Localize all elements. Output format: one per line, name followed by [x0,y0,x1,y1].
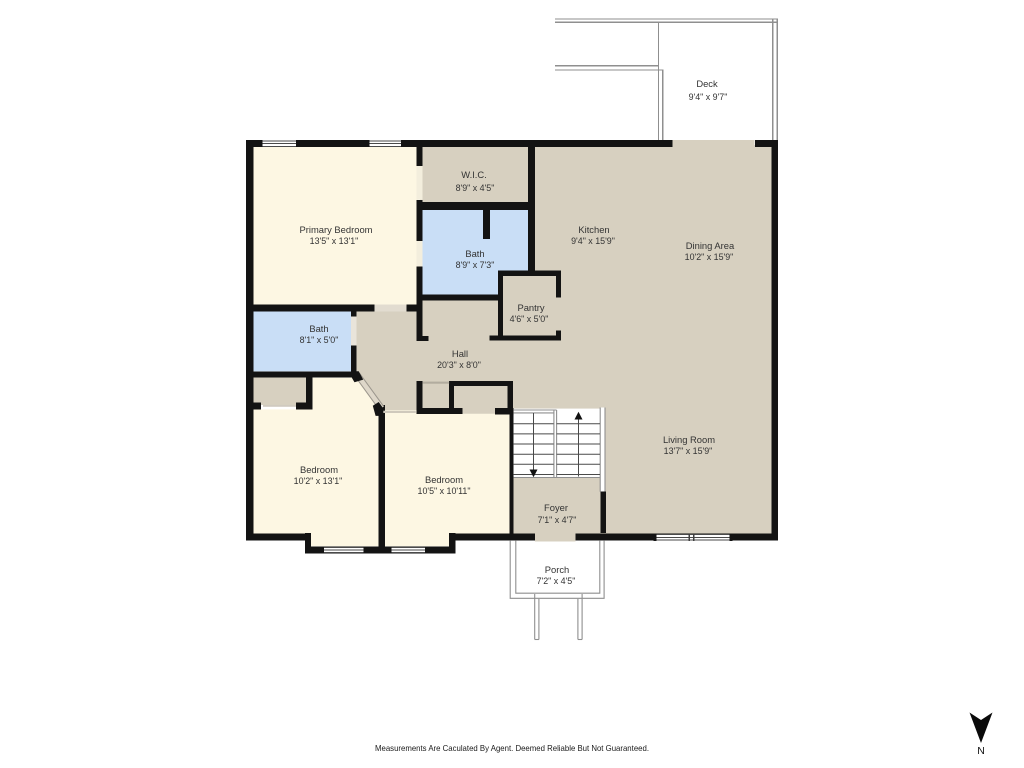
svg-text:20'3" x 8'0": 20'3" x 8'0" [437,360,481,370]
svg-text:Living Room: Living Room [663,434,715,445]
svg-text:9'4" x 15'9": 9'4" x 15'9" [571,236,615,246]
svg-text:7'2" x 4'5": 7'2" x 4'5" [537,576,576,586]
svg-text:8'9" x 4'5": 8'9" x 4'5" [456,183,495,193]
svg-text:Foyer: Foyer [544,502,568,513]
svg-text:10'5" x 10'11": 10'5" x 10'11" [418,486,471,496]
svg-text:Measurements Are Caculated By: Measurements Are Caculated By Agent. Dee… [375,743,649,753]
svg-text:7'1" x 4'7": 7'1" x 4'7" [538,515,577,525]
svg-text:Kitchen: Kitchen [578,224,609,235]
svg-text:Primary Bedroom: Primary Bedroom [300,224,373,235]
svg-text:Pantry: Pantry [517,302,544,313]
svg-text:13'5" x 13'1": 13'5" x 13'1" [310,236,359,246]
svg-text:Porch: Porch [545,564,570,575]
svg-text:8'1" x 5'0": 8'1" x 5'0" [300,335,339,345]
svg-text:4'6" x 5'0": 4'6" x 5'0" [510,314,549,324]
svg-text:10'2" x 13'1": 10'2" x 13'1" [294,476,343,486]
svg-text:Deck: Deck [696,78,718,89]
svg-text:9'4" x 9'7": 9'4" x 9'7" [689,92,728,102]
svg-text:Bath: Bath [309,323,328,334]
svg-text:Bedroom: Bedroom [425,474,463,485]
svg-text:N: N [977,745,985,757]
svg-text:8'9" x 7'3": 8'9" x 7'3" [456,260,495,270]
svg-text:Dining Area: Dining Area [686,240,735,251]
svg-text:10'2" x 15'9": 10'2" x 15'9" [685,252,734,262]
svg-text:Bath: Bath [465,248,484,259]
svg-text:W.I.C.: W.I.C. [461,169,487,180]
svg-text:Bedroom: Bedroom [300,464,338,475]
svg-text:Hall: Hall [452,348,468,359]
svg-text:13'7" x 15'9": 13'7" x 15'9" [664,446,713,456]
